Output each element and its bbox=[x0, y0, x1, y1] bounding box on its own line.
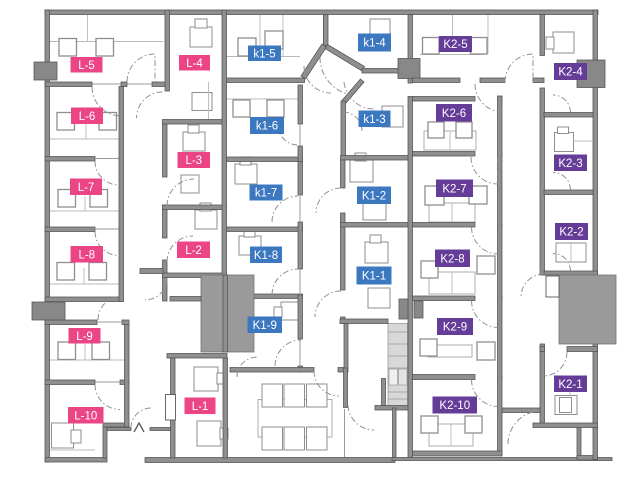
svg-text:K2-6: K2-6 bbox=[442, 108, 466, 120]
svg-text:K2-2: K2-2 bbox=[559, 227, 583, 239]
svg-text:K1-8: K1-8 bbox=[254, 250, 278, 262]
svg-text:K2-8: K2-8 bbox=[440, 253, 464, 265]
svg-text:L-7: L-7 bbox=[78, 182, 95, 194]
svg-text:L-5: L-5 bbox=[78, 60, 95, 72]
svg-text:K1-1: K1-1 bbox=[362, 271, 386, 283]
svg-text:L-3: L-3 bbox=[185, 155, 202, 167]
svg-text:K2-3: K2-3 bbox=[558, 158, 582, 170]
svg-text:L-4: L-4 bbox=[186, 58, 203, 70]
svg-text:k1-6: k1-6 bbox=[256, 121, 278, 133]
svg-text:K1-9: K1-9 bbox=[253, 320, 277, 332]
svg-text:K2-9: K2-9 bbox=[443, 322, 467, 334]
svg-text:K2-4: K2-4 bbox=[558, 67, 583, 79]
svg-text:k1-7: k1-7 bbox=[255, 188, 277, 200]
svg-text:K2-1: K2-1 bbox=[558, 379, 582, 391]
svg-text:L-6: L-6 bbox=[79, 111, 96, 123]
svg-text:k1-3: k1-3 bbox=[363, 114, 385, 126]
svg-text:K2-5: K2-5 bbox=[443, 39, 467, 51]
svg-text:L-1: L-1 bbox=[192, 401, 209, 413]
svg-text:L-9: L-9 bbox=[76, 331, 93, 343]
svg-text:k1-5: k1-5 bbox=[253, 48, 275, 60]
svg-text:L-2: L-2 bbox=[185, 245, 202, 257]
svg-text:k1-4: k1-4 bbox=[363, 38, 386, 50]
svg-text:K1-2: K1-2 bbox=[362, 190, 386, 202]
svg-text:L-8: L-8 bbox=[78, 249, 95, 261]
svg-text:K2-10: K2-10 bbox=[439, 400, 470, 412]
svg-text:L-10: L-10 bbox=[74, 410, 97, 422]
svg-text:K2-7: K2-7 bbox=[442, 183, 466, 195]
